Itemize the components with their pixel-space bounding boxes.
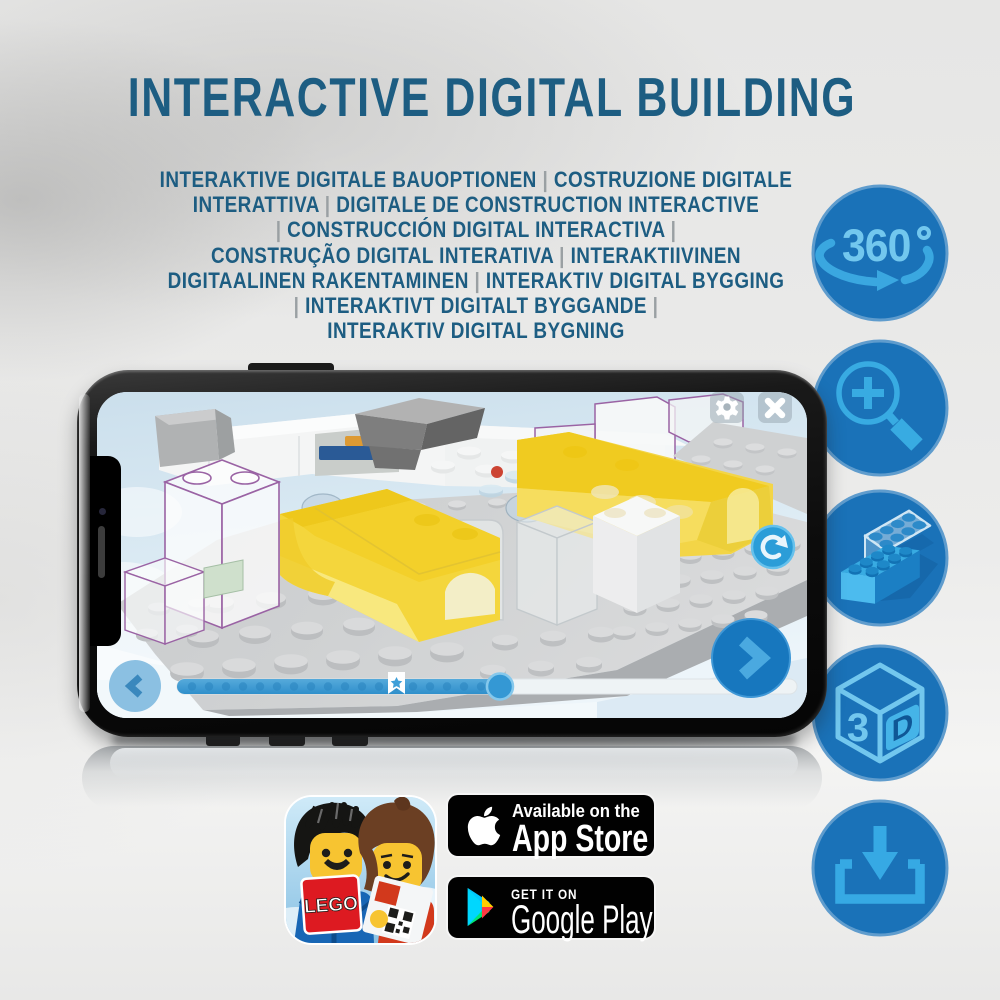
svg-text:360: 360	[842, 221, 910, 271]
svg-text:3: 3	[847, 706, 869, 750]
svg-text:LEGO: LEGO	[303, 893, 358, 918]
